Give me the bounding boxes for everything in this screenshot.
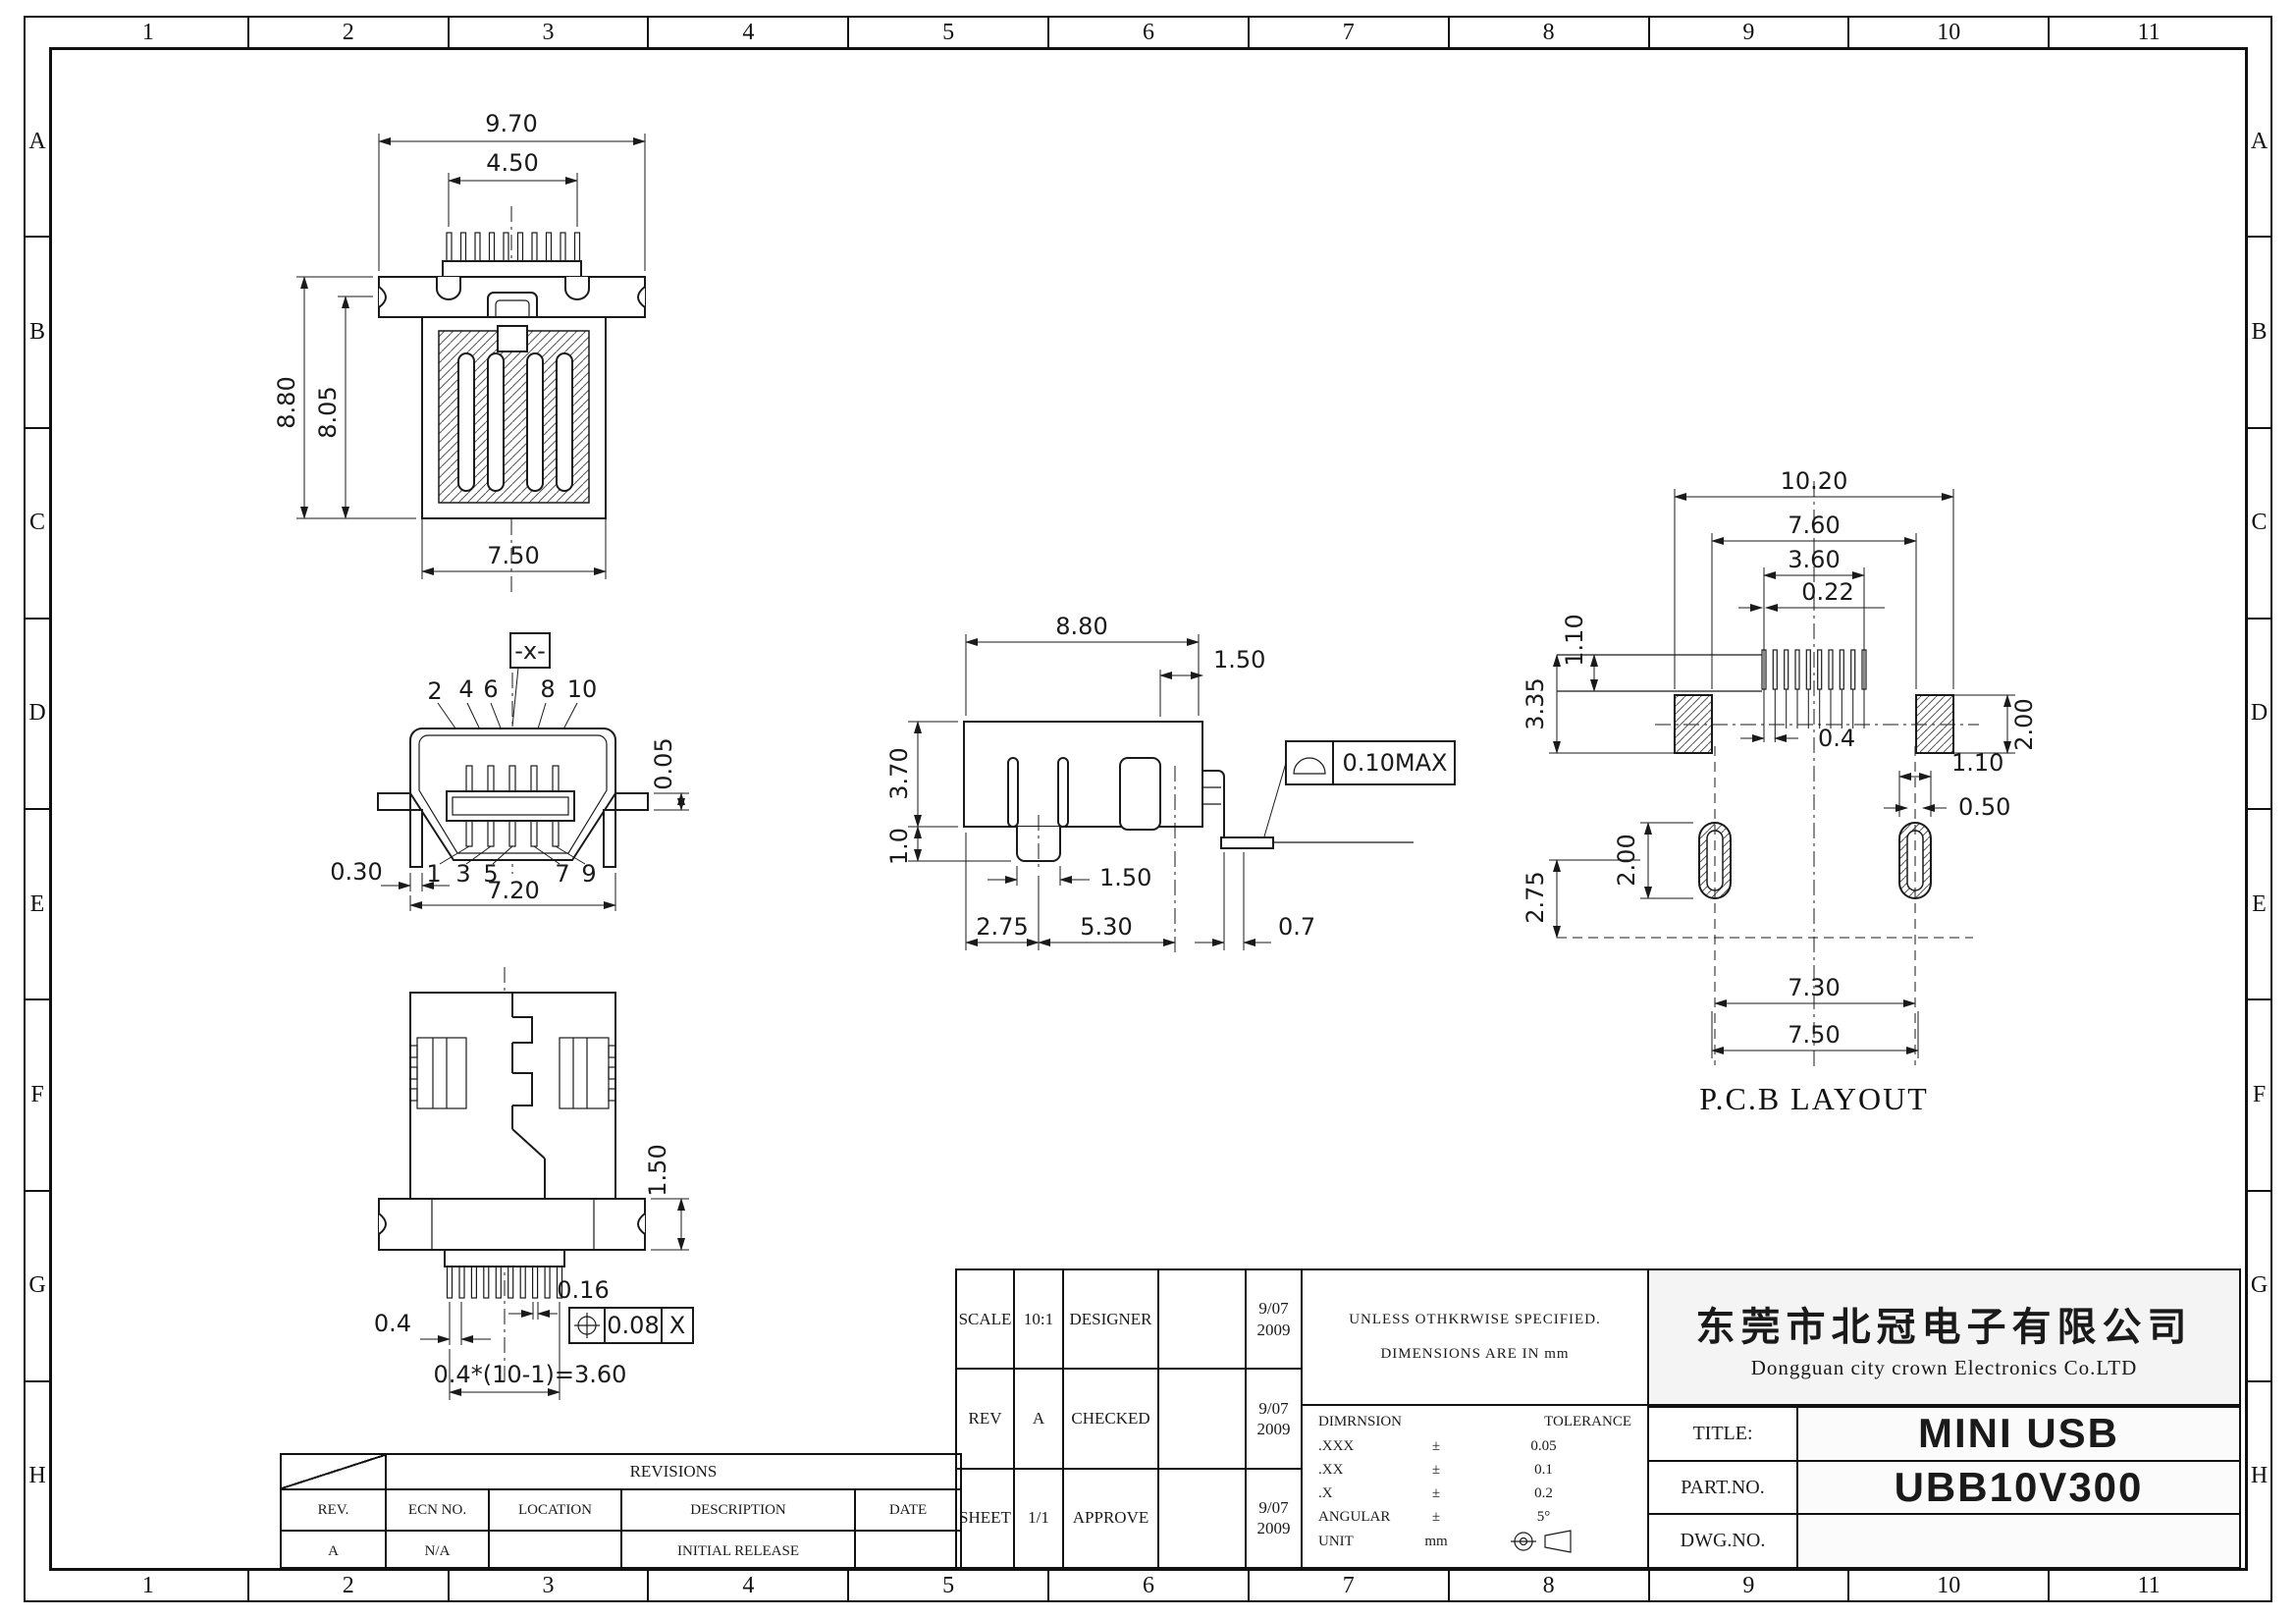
rev-cell [488, 1532, 620, 1571]
front-shell [378, 728, 648, 867]
tol-dim: .XXX [1318, 1434, 1416, 1458]
zone-col: 2 [247, 1571, 448, 1600]
company-title-block: 东莞市北冠电子有限公司 Dongguan city crown Electron… [1649, 1268, 2241, 1569]
checked-label: CHECKED [1062, 1370, 1157, 1467]
bottom-body [379, 993, 645, 1298]
dim-10-20: 10.20 [1781, 467, 1848, 495]
zone-col: 10 [1847, 18, 2048, 47]
zone-col: 6 [1047, 1571, 1248, 1600]
approve-label: APPROVE [1062, 1470, 1157, 1567]
col-header: ECN NO. [385, 1490, 488, 1530]
zone-col: 11 [2048, 1571, 2248, 1600]
zone-row: C [2248, 427, 2270, 618]
pcb-slots [1557, 746, 1973, 1065]
zone-row: F [2248, 998, 2270, 1189]
plusminus: ± [1416, 1482, 1456, 1505]
zone-row: F [26, 998, 49, 1189]
tol-header-tolerance: TOLERANCE [1544, 1414, 1631, 1430]
zone-col: 11 [2048, 18, 2248, 47]
zone-col: 10 [1847, 1571, 2048, 1600]
dim-8-80: 8.80 [273, 376, 300, 428]
tolerance-block: UNLESS OTHKRWISE SPECIFIED. DIMENSIONS A… [1303, 1268, 1649, 1569]
dim-3-35: 3.35 [1522, 677, 1549, 729]
zone-col: 8 [1448, 1571, 1648, 1600]
dim-0-22: 0.22 [1801, 578, 1853, 606]
dwg-no-label: DWG.NO. [1649, 1515, 1798, 1567]
zone-col: 7 [1248, 1571, 1448, 1600]
col-header: DESCRIPTION [620, 1490, 854, 1530]
position-datum: X [669, 1312, 685, 1339]
zone-row: A [2248, 47, 2270, 236]
drawing-sheet: 1 2 3 4 5 6 7 8 9 10 11 1 2 3 4 5 6 7 8 … [0, 0, 2296, 1618]
tol-value: 5° [1456, 1505, 1631, 1529]
zone-col: 4 [647, 1571, 847, 1600]
plusminus: ± [1416, 1458, 1456, 1482]
plusminus: ± [1416, 1505, 1456, 1529]
dim-7-60: 7.60 [1788, 512, 1840, 539]
company-name-en: Dongguan city crown Electronics Co.LTD [1751, 1356, 2138, 1380]
zone-strip-bottom: 1 2 3 4 5 6 7 8 9 10 11 [49, 1571, 2248, 1600]
zone-col: 1 [49, 18, 247, 47]
revisions-table: REVISIONS REV. ECN NO. LOCATION DESCRIPT… [280, 1453, 962, 1569]
plusminus: ± [1416, 1434, 1456, 1458]
zone-col: 2 [247, 18, 448, 47]
dim-2-75: 2.75 [976, 913, 1028, 941]
tol-dim: .XX [1318, 1458, 1416, 1482]
projection-icon [1456, 1529, 1631, 1554]
zone-col: 3 [448, 1571, 648, 1600]
title-label: TITLE: [1649, 1408, 1798, 1460]
flatness-value: 0.10MAX [1342, 749, 1447, 777]
designer-label: DESIGNER [1062, 1270, 1157, 1368]
position-tolerance-flag: 0.08 X [569, 1308, 693, 1343]
col-header: LOCATION [488, 1490, 620, 1530]
dim-7-30: 7.30 [1788, 974, 1840, 1001]
pcb-layout-drawing: 10.20 7.60 3.60 0.22 1.10 3.35 2.00 0.4 … [1472, 422, 2179, 1129]
front-view-drawing: -x- 2 4 6 8 10 [265, 619, 697, 918]
spec-note-2: DIMENSIONS ARE IN mm [1380, 1346, 1569, 1363]
dim-0-05: 0.05 [650, 737, 677, 789]
dim-1-50-top: 1.50 [1213, 646, 1265, 674]
tol-value: 0.2 [1456, 1482, 1631, 1505]
zone-row: E [26, 808, 49, 998]
designer-signature [1157, 1270, 1245, 1368]
zone-col: 9 [1648, 18, 1848, 47]
dim-2-00-right: 2.00 [2010, 698, 2038, 750]
zone-row: B [26, 236, 49, 426]
pin-label: 10 [567, 675, 598, 703]
dim-0-50: 0.50 [1958, 793, 2010, 821]
zone-row: C [26, 427, 49, 618]
title-value: MINI USB [1798, 1408, 2239, 1460]
pin-label: 4 [458, 675, 473, 703]
pitch-note: 0.4*(10-1)=3.60 [434, 1361, 627, 1388]
dim-3-60: 3.60 [1788, 546, 1840, 573]
revisions-diagonal-cell [282, 1455, 387, 1488]
approval-table: SCALE 10:1 DESIGNER 9/07 2009 REV A CHEC… [955, 1268, 1303, 1569]
pin-label: 9 [581, 860, 596, 888]
dim-2-00-slot: 2.00 [1613, 834, 1640, 886]
rev-cell: A [282, 1532, 385, 1571]
dim-9-70: 9.70 [485, 110, 537, 137]
dim-7-50: 7.50 [487, 542, 539, 569]
rev-cell: N/A [385, 1532, 488, 1571]
tolerance-row: .XXX ± 0.05 [1318, 1434, 1631, 1458]
zone-strip-right: A B C D E F G H [2248, 47, 2270, 1571]
datum-x-label: -x- [514, 637, 546, 665]
zone-col: 6 [1047, 18, 1248, 47]
zone-row: E [2248, 808, 2270, 998]
rev-value: A [1013, 1370, 1062, 1467]
unit-value: mm [1416, 1534, 1456, 1550]
zone-strip-top: 1 2 3 4 5 6 7 8 9 10 11 [49, 18, 2248, 47]
dim-0-30: 0.30 [330, 858, 382, 886]
position-value: 0.08 [607, 1312, 659, 1339]
revisions-data-row: A N/A INITIAL RELEASE [282, 1530, 960, 1571]
flatness-flag: 0.10MAX [1286, 741, 1455, 784]
pin-label: 2 [427, 677, 442, 705]
dim-5-30: 5.30 [1080, 913, 1132, 941]
zone-row: G [26, 1190, 49, 1380]
sheet-label: SHEET [957, 1470, 1013, 1567]
spec-note-1: UNLESS OTHKRWISE SPECIFIED. [1349, 1312, 1601, 1328]
rev-cell: INITIAL RELEASE [620, 1532, 854, 1571]
checked-date: 9/07 2009 [1245, 1370, 1301, 1467]
col-header: DATE [854, 1490, 960, 1530]
scale-label: SCALE [957, 1270, 1013, 1368]
tolerance-row: .XX ± 0.1 [1318, 1458, 1631, 1482]
revisions-title: REVISIONS [387, 1455, 960, 1488]
part-no-label: PART.NO. [1649, 1462, 1798, 1514]
tol-dim: .X [1318, 1482, 1416, 1505]
pin-label: 1 [426, 860, 441, 888]
zone-row: D [2248, 618, 2270, 808]
pin-label: 3 [455, 860, 470, 888]
dim-1-10-slot: 1.10 [1951, 749, 2003, 777]
designer-date: 9/07 2009 [1245, 1270, 1301, 1368]
checked-signature [1157, 1370, 1245, 1467]
zone-col: 5 [847, 1571, 1047, 1600]
pcb-pads [1557, 633, 1953, 753]
pcb-layout-label: P.C.B LAYOUT [1699, 1081, 1929, 1116]
dim-7-20: 7.20 [487, 877, 539, 904]
dim-1-0: 1.0 [885, 828, 913, 865]
dim-1-10-left: 1.10 [1561, 614, 1588, 666]
top-view-body [379, 277, 645, 518]
pin-label: 6 [483, 675, 498, 703]
zone-strip-left: A B C D E F G H [26, 47, 49, 1571]
tol-dim: ANGULAR [1318, 1505, 1416, 1529]
sheet-value: 1/1 [1013, 1470, 1062, 1567]
dim-0-4: 0.4 [1818, 725, 1855, 752]
pin-label: 8 [540, 675, 555, 703]
dim-8-80: 8.80 [1055, 613, 1107, 640]
top-view-drawing: 9.70 4.50 7.50 8.80 8.05 [177, 69, 667, 604]
unit-label: UNIT [1318, 1534, 1416, 1550]
side-view-drawing: 8.80 1.50 3.70 1.0 1.50 2.75 5.30 0.7 0.… [864, 619, 1472, 972]
dim-0-4: 0.4 [374, 1310, 411, 1337]
zone-col: 7 [1248, 18, 1448, 47]
dim-8-05: 8.05 [314, 386, 342, 438]
approve-date: 9/07 2009 [1245, 1470, 1301, 1567]
zone-row: H [2248, 1380, 2270, 1571]
dwg-no-value [1798, 1515, 2239, 1567]
tolerance-row: .X ± 0.2 [1318, 1482, 1631, 1505]
tol-value: 0.05 [1456, 1434, 1631, 1458]
zone-row: A [26, 47, 49, 236]
zone-col: 4 [647, 18, 847, 47]
zone-row: H [26, 1380, 49, 1571]
dim-1-50: 1.50 [644, 1144, 671, 1196]
bottom-view-drawing: 1.50 0.4 0.16 0.08 X 0.4*(10-1)=3.60 [245, 923, 805, 1414]
company-name-cn: 东莞市北冠电子有限公司 [1696, 1295, 2193, 1352]
dim-1-50-tab: 1.50 [1099, 864, 1151, 891]
zone-col: 9 [1648, 1571, 1848, 1600]
zone-col: 1 [49, 1571, 247, 1600]
dim-0-16: 0.16 [557, 1276, 609, 1304]
part-no-value: UBB10V300 [1798, 1462, 2239, 1514]
dim-7-50: 7.50 [1788, 1021, 1840, 1049]
dim-0-7: 0.7 [1278, 913, 1315, 941]
tol-header-dimension: DIMRNSION [1318, 1414, 1402, 1430]
revisions-header-row: REV. ECN NO. LOCATION DESCRIPTION DATE [282, 1488, 960, 1530]
zone-row: B [2248, 236, 2270, 426]
zone-row: G [2248, 1190, 2270, 1380]
tol-value: 0.1 [1456, 1458, 1631, 1482]
zone-col: 5 [847, 18, 1047, 47]
dim-3-70: 3.70 [885, 747, 913, 799]
rev-cell [854, 1532, 960, 1571]
zone-col: 3 [448, 18, 648, 47]
dim-4-50: 4.50 [486, 149, 538, 177]
approve-signature [1157, 1470, 1245, 1567]
col-header: REV. [282, 1490, 385, 1530]
tolerance-row: ANGULAR ± 5° [1318, 1505, 1631, 1529]
zone-row: D [26, 618, 49, 808]
scale-value: 10:1 [1013, 1270, 1062, 1368]
pin-label: 7 [555, 860, 569, 888]
dim-2-75: 2.75 [1522, 871, 1549, 923]
rev-label: REV [957, 1370, 1013, 1467]
zone-col: 8 [1448, 18, 1648, 47]
